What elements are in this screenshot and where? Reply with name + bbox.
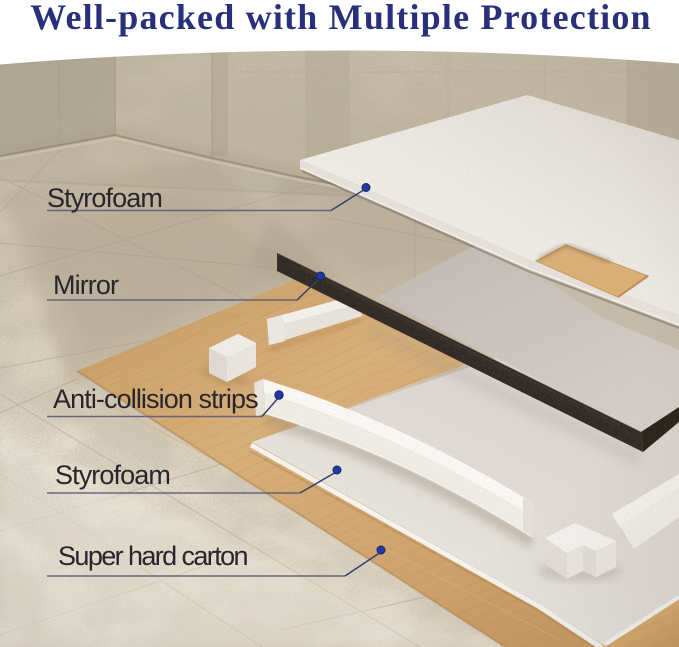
svg-text:Well-packed with Multiple Prot: Well-packed with Multiple Protection xyxy=(30,0,652,37)
svg-text:Anti-collision strips: Anti-collision strips xyxy=(53,384,258,414)
svg-text:Styrofoam: Styrofoam xyxy=(47,183,162,213)
svg-text:Styrofoam: Styrofoam xyxy=(55,460,170,490)
svg-text:Mirror: Mirror xyxy=(53,270,119,300)
svg-text:Super hard carton: Super hard carton xyxy=(58,541,248,571)
